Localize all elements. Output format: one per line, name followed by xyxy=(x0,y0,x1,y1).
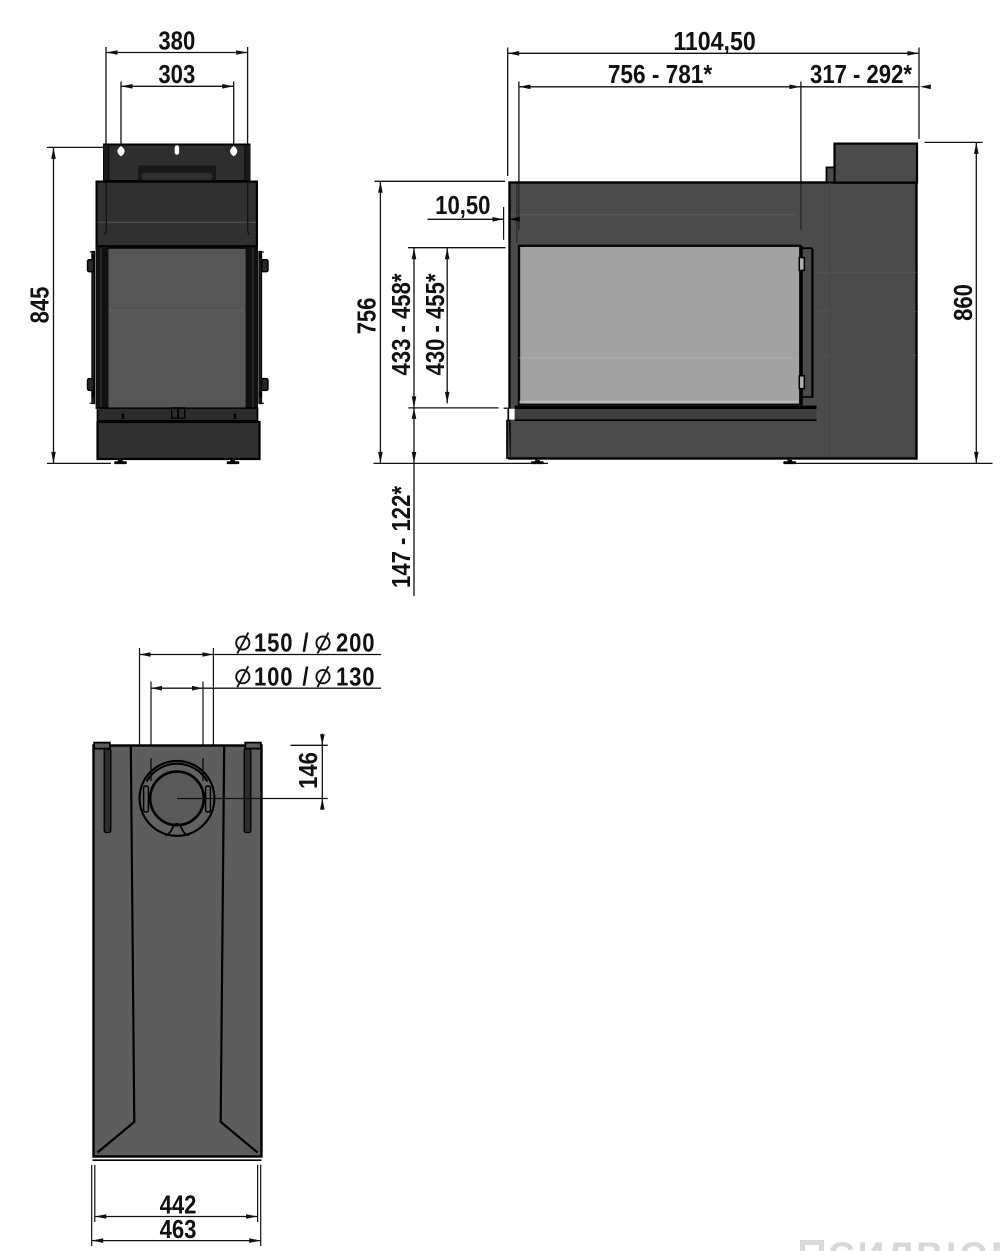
svg-text:/: / xyxy=(302,629,308,658)
svg-text:/: / xyxy=(302,663,308,692)
svg-text:130: 130 xyxy=(336,663,375,692)
svg-text:100: 100 xyxy=(254,663,293,692)
svg-text:380: 380 xyxy=(158,27,195,56)
svg-text:303: 303 xyxy=(158,61,195,90)
svg-text:430 - 455*: 430 - 455* xyxy=(421,273,450,375)
svg-text:1104,50: 1104,50 xyxy=(673,28,755,57)
svg-text:756: 756 xyxy=(353,298,382,335)
svg-text:433 - 458*: 433 - 458* xyxy=(387,273,416,375)
svg-text:845: 845 xyxy=(26,287,55,324)
svg-text:146: 146 xyxy=(294,752,323,789)
svg-text:147 - 122*: 147 - 122* xyxy=(387,485,416,587)
svg-text:756 - 781*: 756 - 781* xyxy=(608,61,713,90)
svg-text:463: 463 xyxy=(160,1215,197,1244)
svg-text:317 - 292*: 317 - 292* xyxy=(810,61,912,90)
svg-text:200: 200 xyxy=(336,629,375,658)
svg-text:СИЛВІОМС ЮУ: СИЛВІОМС ЮУ xyxy=(828,1235,1000,1251)
svg-text:860: 860 xyxy=(949,284,978,321)
svg-text:10,50: 10,50 xyxy=(435,191,490,220)
svg-text:150: 150 xyxy=(254,629,293,658)
